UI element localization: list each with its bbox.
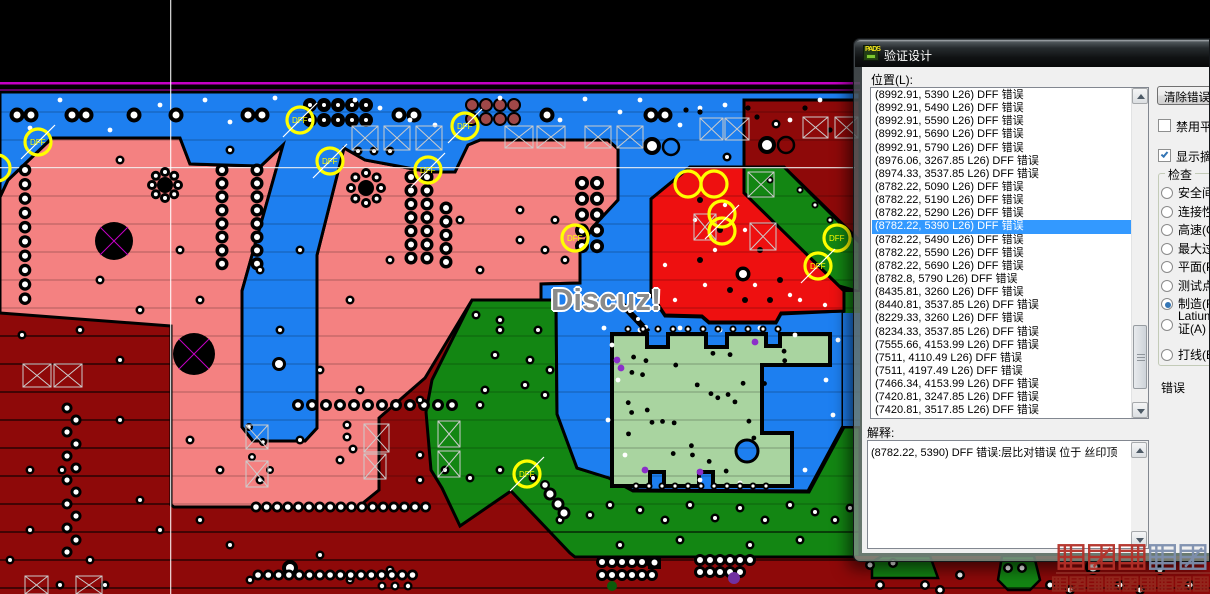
- svg-text:DFF: DFF: [420, 166, 436, 175]
- svg-text:DFF: DFF: [30, 138, 46, 147]
- svg-text:DFF: DFF: [810, 262, 826, 271]
- svg-text:DFF: DFF: [457, 122, 473, 131]
- svg-text:DFF: DFF: [829, 234, 845, 243]
- svg-text:DFF: DFF: [322, 157, 338, 166]
- svg-text:DFF: DFF: [519, 470, 535, 479]
- svg-text:DFF: DFF: [292, 116, 308, 125]
- svg-text:DFF: DFF: [567, 234, 583, 243]
